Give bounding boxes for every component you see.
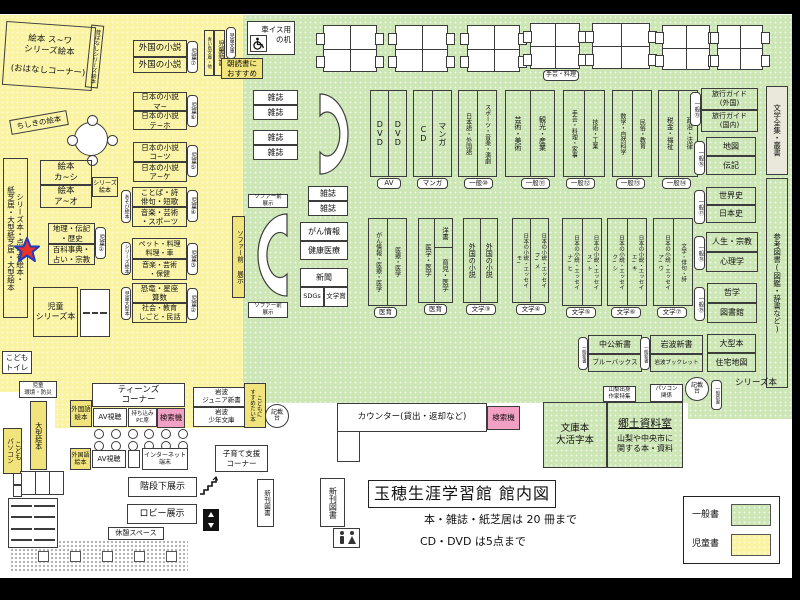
jp-novels-ko-tsu-shelf: 日本の小説 コ~ツ xyxy=(133,142,187,162)
ohanashi-corner-shelf: 絵本 ス~ワ シリーズ絵本 (おはなしコーナー) xyxy=(2,21,96,91)
badge-shinsho-2: 一般新書 xyxy=(640,337,650,370)
shelf-gen10-col-1: 日本語・外国語 xyxy=(459,91,477,176)
kids-toilet: こども トイレ xyxy=(2,351,32,374)
series-ehon-label-left: シリーズ絵本 xyxy=(121,242,131,275)
ongaku-sports-shelf: 音楽・芸術 ・スポーツ xyxy=(132,207,187,227)
cancer-info-shelf: がん情報 xyxy=(300,222,348,241)
badge-jido-bunko: 児童文庫 xyxy=(226,27,236,59)
travel-guide-domestic-shelf: 旅行ガイド (国内) xyxy=(701,110,758,132)
shelf-gen12-col-2: 技術・工業 xyxy=(584,91,605,176)
hyakka-uranai-shelf: 百科事典・ 占い・宗教 xyxy=(48,244,95,265)
kenko-iryo-shelf: 健康医療 xyxy=(300,241,348,260)
kyodo-shiryo-room-line-3: 関する本・資料 xyxy=(617,444,673,454)
magazine-shelf-3b: 雑誌 xyxy=(308,201,348,216)
kisaidai-circle-right: 記載 台 xyxy=(685,377,709,401)
shelf-gen13-col-2: 民俗・教育 xyxy=(632,91,652,176)
badge-gen19: 一般⑲ xyxy=(694,287,705,321)
shelf-ikuji-igaku: 育児・医学 xyxy=(434,247,453,303)
shelf-cancer-medical-col-1: がん情報・医療・医学 xyxy=(369,219,387,305)
iwanami-shinsho-shelf: 岩波新書 xyxy=(650,335,703,354)
shelf-bun7-col-2: 文学・俳句・詩 xyxy=(673,219,693,305)
bluebacks-shelf: ブルーバックス xyxy=(588,354,642,372)
sofa-front-display-bottom: ソファー前 展示 xyxy=(248,302,288,318)
rest-space-label: 休憩スペース xyxy=(108,527,164,540)
series-ehon-small-label: シリーズ 絵本 xyxy=(92,177,118,197)
bungakusho-shelf: 文学賞 xyxy=(324,287,348,307)
reading-table-4 xyxy=(530,23,580,69)
reading-table-7 xyxy=(717,25,763,70)
badge-bun3: 文学③ xyxy=(466,304,496,315)
badge-bun6: 文学⑥ xyxy=(611,307,641,318)
teens-corner: ティーンズ コーナー xyxy=(92,383,185,407)
shelf-bun4: 日本の小説・エッセイ モ~日本の小説・エッセイ フ~メ xyxy=(512,218,549,303)
kids-pc: こども パソコン xyxy=(3,428,22,474)
badge-jido-5: 児童⑤ xyxy=(187,145,198,177)
magazine-shelf-3a: 雑誌 xyxy=(308,186,348,201)
lockers-shelf xyxy=(8,498,58,548)
general-area-lower-right xyxy=(688,403,792,419)
badge-jido-7: 児童⑦ xyxy=(187,41,198,73)
shelf-gen10-col-2: スポーツ・音楽・演劇 xyxy=(477,91,496,176)
stairs-icon xyxy=(198,475,218,496)
legend: 一般書 児童書 xyxy=(683,496,780,564)
wheelchair-desk: 車イス用の机 xyxy=(247,21,295,55)
kisaidai-circle-left: 記載 台 xyxy=(265,404,289,428)
left-table-row xyxy=(20,471,64,495)
shelf-bun6: 日本の小説・エッセイ ク~シ日本の小説・エッセイ エ~キ xyxy=(607,218,647,306)
magazine-shelf-1a: 雑誌 xyxy=(253,90,298,105)
bunkobon-shelf: 文庫本 大活字本 xyxy=(543,402,607,468)
shelf-igaku: 医学・医学 xyxy=(418,218,435,303)
kodomo-susume-box: こどもに すすめたい本 xyxy=(244,383,266,428)
badge-av: AV xyxy=(377,178,401,189)
kyoryu-seiza-sansu-shelf: 恐竜・星座 算数 xyxy=(132,283,187,303)
jp-novels-te-ho-shelf: 日本の小説 テ~ホ xyxy=(133,111,187,130)
stairs-display: 階段下展示 xyxy=(128,477,197,497)
kyodo-shiryo-room: 郷土資料室山梨や中央市に関する本・資料 xyxy=(607,402,683,468)
badge-gen18: 一般⑱ xyxy=(694,236,705,270)
tetsugaku-shelf: 哲学 xyxy=(707,283,757,303)
badge-iiku-2: 医育 xyxy=(424,304,447,315)
shelf-cd-manga-col-2: マンガ xyxy=(432,91,451,176)
map-shelf: 地図 xyxy=(706,137,756,156)
bungaku-zenshu-shelf: 文学全集・叢書 xyxy=(766,86,788,175)
asobi-ehon-label: あそび絵本 xyxy=(121,190,131,223)
jido-series-shelf: 児童 シリーズ本 xyxy=(33,287,78,337)
shelf-bun6-col-1: 日本の小説・エッセイ ク~シ xyxy=(608,219,627,305)
search-terminal-2: 検索機 xyxy=(487,406,520,430)
iwanami-junior-shinsho-shelf: 岩波 ジュニア新書 xyxy=(193,387,250,407)
badge-jido-3: 児童③ xyxy=(187,243,198,275)
kyodo-shiryo-room-line-1: 郷土資料室 xyxy=(618,417,672,430)
shelf-cd-manga: CDマンガ xyxy=(413,90,452,177)
pet-ryori-kuruma-shelf: ペット・料理 料理・車 xyxy=(132,238,187,259)
badge-gen10: 一般⑩ xyxy=(464,178,493,189)
shelf-bun3-col-2: 外国の小説 xyxy=(480,219,497,302)
shelf-bun5-col-1: 日本の小説・エッセイ ナ~ヒ xyxy=(563,219,582,305)
loan-limit-note: 本・雑誌・紙芝居は 20 冊まで xyxy=(424,511,577,527)
badge-iiku-1: 医育 xyxy=(374,307,397,318)
gaikokugo-ehon-label-2: 外国語 絵本 xyxy=(70,448,91,470)
mochikomi-pc-seat: 持ち込み PC席 xyxy=(128,408,157,427)
jp-novels-a-ke-shelf: 日本の小説 ア~ケ xyxy=(133,162,187,182)
library-floor-map: 玉穂生涯学習館 館内図 本・雑誌・紙芝居は 20 冊まで CD・DVD は5点ま… xyxy=(0,0,800,600)
pc-kankei-box: パソコン 関係 xyxy=(650,384,683,402)
badge-jido-4: 児童④ xyxy=(187,190,198,222)
magazine-shelf-2a: 雑誌 xyxy=(253,130,298,145)
badge-gen12: 一般⑫ xyxy=(566,178,595,189)
reading-table-1 xyxy=(323,25,377,72)
kosodate-corner: 子育て支援 コーナー xyxy=(215,445,268,472)
badge-jido-2: 児童② xyxy=(187,288,198,320)
legend-general-label: 一般書 xyxy=(692,510,719,521)
badge-manga: マンガ xyxy=(417,178,448,189)
badge-bun4: 文学④ xyxy=(516,304,546,315)
shelf-bun3: 外国の小説外国の小説 xyxy=(463,218,498,303)
shinkan-tosho-shelf-1: 新刊図書 xyxy=(257,479,274,527)
yamanashi-sakka-box: 山梨出身 作家特集 xyxy=(603,386,636,402)
legend-row-general: 一般書 xyxy=(692,504,771,526)
badge-gen11: 一般⑪ xyxy=(521,178,550,189)
sofa-front-display-side: ソファー前 展示 xyxy=(232,216,245,298)
badge-bun5: 文学⑤ xyxy=(566,307,596,318)
reading-table-2 xyxy=(395,25,448,72)
iwanami-shonen-bunko-shelf: 岩波 少年文庫 xyxy=(193,407,250,427)
sanko-tosho-shelf: 参考図書(図鑑・辞書など) xyxy=(766,178,788,388)
shugei-ryori-label: 手芸・料理 xyxy=(543,70,579,81)
page-title-text: 玉穂生涯学習館 館内図 xyxy=(374,484,550,504)
shelf-gen11: 芸術・美術観光・産業 xyxy=(505,90,555,177)
crescent-sofa-top xyxy=(317,90,351,178)
cd-dvd-limit-note: CD・DVD は5点まで xyxy=(420,533,526,549)
badge-jido-1: 児童① xyxy=(95,227,106,259)
badge-bun7: 文学⑦ xyxy=(657,307,687,318)
chiri-denki-rekishi-shelf: 地理・伝記 ・歴史 xyxy=(48,223,95,244)
badge-gen13: 一般⑬ xyxy=(616,178,645,189)
foreign-novels-shelf-b: 外国の小説 xyxy=(133,57,187,73)
magazine-shelf-2b: 雑誌 xyxy=(253,145,298,160)
badge-shinsho-1: 一般新書 xyxy=(578,337,588,370)
shelf-cancer-medical: がん情報・医療・医学医療・医学 xyxy=(368,218,407,306)
shinrigaku-shelf: 心理学 xyxy=(706,252,758,272)
shelf-bun4-col-1: 日本の小説・エッセイ モ~ xyxy=(513,219,530,302)
shelf-gen13-col-1: 数学・自然科学 xyxy=(613,91,632,176)
shelf-gen13: 数学・自然科学民俗・教育 xyxy=(612,90,652,177)
counter: カウンター(貸出・返却など) xyxy=(337,403,487,432)
empty-seat-box xyxy=(128,450,140,468)
world-history-shelf: 世界史 xyxy=(706,187,756,205)
shelf-bun5: 日本の小説・エッセイ ナ~ヒ日本の小説・エッセイ ス~ト xyxy=(562,218,602,306)
shelf-bun5-col-2: 日本の小説・エッセイ ス~ト xyxy=(582,219,602,305)
japan-history-shelf: 日本史 xyxy=(706,205,756,223)
badge-gen15: 一般⑮ xyxy=(690,92,701,126)
gaikokugo-ehon-label-1: 外国語 絵本 xyxy=(70,400,92,427)
jinsei-shukyo-shelf: 人生・宗教 xyxy=(706,232,758,252)
series-bon-label: シリーズ本 xyxy=(724,376,788,390)
ehon-ka-shi-shelf: 絵本 カ~シ xyxy=(40,160,92,185)
shinkan-tosho-shelf-2: 新刊図書 xyxy=(320,478,345,527)
foreign-novels-shelf-a: 外国の小説 xyxy=(133,40,187,57)
shelf-dvd-col-1: DVD xyxy=(371,91,388,176)
shelf-bun3-col-1: 外国の小説 xyxy=(464,219,480,302)
sdgs-shelf: SDGs xyxy=(300,287,324,307)
legend-children-label: 児童書 xyxy=(692,539,719,550)
jido-ogata-label: 児童大型本 xyxy=(121,287,131,320)
denki-shelf: 伝記 xyxy=(706,156,756,175)
reading-table-3 xyxy=(467,25,520,72)
jp-novels-ma-shelf: 日本の小説 マ~ xyxy=(133,92,187,111)
shelf-cancer-medical-col-2: 医療・医学 xyxy=(387,219,406,305)
shelf-bun4-col-2: 日本の小説・エッセイ フ~メ xyxy=(530,219,548,302)
wheelchair-icon xyxy=(250,35,267,52)
aoitori-bunko-label: 青い鳥文庫・他 xyxy=(204,30,214,76)
reading-table-6 xyxy=(662,25,710,70)
lobby-display: ロビー展示 xyxy=(127,504,197,524)
badge-gen14: 一般⑭ xyxy=(662,178,691,189)
travel-guide-foreign-shelf: 旅行ガイド (外国) xyxy=(701,88,758,110)
jutaku-chizu-shelf: 住宅地図 xyxy=(707,353,756,372)
magazine-shelf-1b: 雑誌 xyxy=(253,105,298,120)
legend-children-swatch xyxy=(731,534,771,556)
shakai-kyoiku-minwa-shelf: 社会・教育 しごと・民話 xyxy=(132,303,187,323)
counter-leg xyxy=(337,431,360,462)
legend-row-children: 児童書 xyxy=(692,534,771,556)
chuko-shinsho-shelf: 中公新書 xyxy=(588,335,642,354)
search-terminal-1: 検索機 xyxy=(157,408,185,428)
shelf-yosho: 洋書 xyxy=(434,218,453,248)
ogata-ehon-shelf: 大型絵本 xyxy=(30,401,47,470)
newspaper-shelf: 新聞 xyxy=(300,268,348,287)
shelf-gen10: 日本語・外国語スポーツ・音楽・演劇 xyxy=(458,90,497,177)
shelf-bun7: 日本の小説・エッセイ ア~ウ文学・俳句・詩 xyxy=(653,218,693,306)
reading-table-5 xyxy=(592,23,650,69)
crescent-sofa-bottom xyxy=(255,210,290,300)
av-seat-2: AV視聴 xyxy=(92,450,126,468)
page-title: 玉穂生涯学習館 館内図 xyxy=(368,480,556,508)
kyodo-shiryo-room-line-2: 山梨や中央市に xyxy=(617,434,673,444)
legend-general-swatch xyxy=(731,504,771,526)
ogata-bon-shelf: 大型本 xyxy=(707,334,756,353)
shelf-gen14-col-1: 税金・福祉 xyxy=(659,91,678,176)
sofa-front-display-top: ソファー前 展示 xyxy=(248,194,288,208)
kotoba-shi-haiku-shelf: ことば・詩 俳句・短歌 xyxy=(132,187,187,207)
shelf-gen11-col-1: 芸術・美術 xyxy=(506,91,530,176)
ongaku-hoken-shelf: 音楽・芸術 ・保健 xyxy=(132,259,187,280)
badge-gen16: 一般⑯ xyxy=(694,141,705,175)
iwanami-booklet-shelf: 岩波ブックレット xyxy=(650,354,703,372)
shelf-dvd: DVDDVD xyxy=(370,90,407,177)
av-seat-1: AV視聴 xyxy=(93,408,127,427)
shelf-gen12: 手芸・料理・家事技術・工業 xyxy=(563,90,605,177)
shelf-bun7-col-1: 日本の小説・エッセイ ア~ウ xyxy=(654,219,673,305)
elevator-icon xyxy=(203,509,219,531)
internet-terminal: インターネット 端末 xyxy=(142,448,188,470)
toshokan-shelf: 図書館 xyxy=(707,303,757,323)
round-table xyxy=(74,122,108,156)
display-slats xyxy=(80,289,110,337)
ehon-a-o-shelf: 絵本 ア~オ xyxy=(40,185,92,208)
shelf-gen11-col-2: 観光・産業 xyxy=(530,91,555,176)
chair-row-1 xyxy=(94,429,186,437)
badge-gen17: 一般⑰ xyxy=(694,190,705,224)
star-marker xyxy=(14,237,40,263)
shelf-cd-manga-col-1: CD xyxy=(414,91,432,176)
badge-jido-6: 児童⑥ xyxy=(187,95,198,127)
toilet-icon-box xyxy=(333,528,360,548)
shelf-dvd-col-2: DVD xyxy=(388,91,406,176)
asadokusho-recommend-box: 朝読書に おすすめ xyxy=(221,58,263,79)
jido-kankyo-bosai-label: 児童 環境・防災 xyxy=(19,381,57,398)
shelf-gen12-col-1: 手芸・料理・家事 xyxy=(564,91,584,176)
badge-shinsho-3: 一般新書 xyxy=(711,380,722,410)
shelf-bun6-col-2: 日本の小説・エッセイ エ~キ xyxy=(627,219,647,305)
